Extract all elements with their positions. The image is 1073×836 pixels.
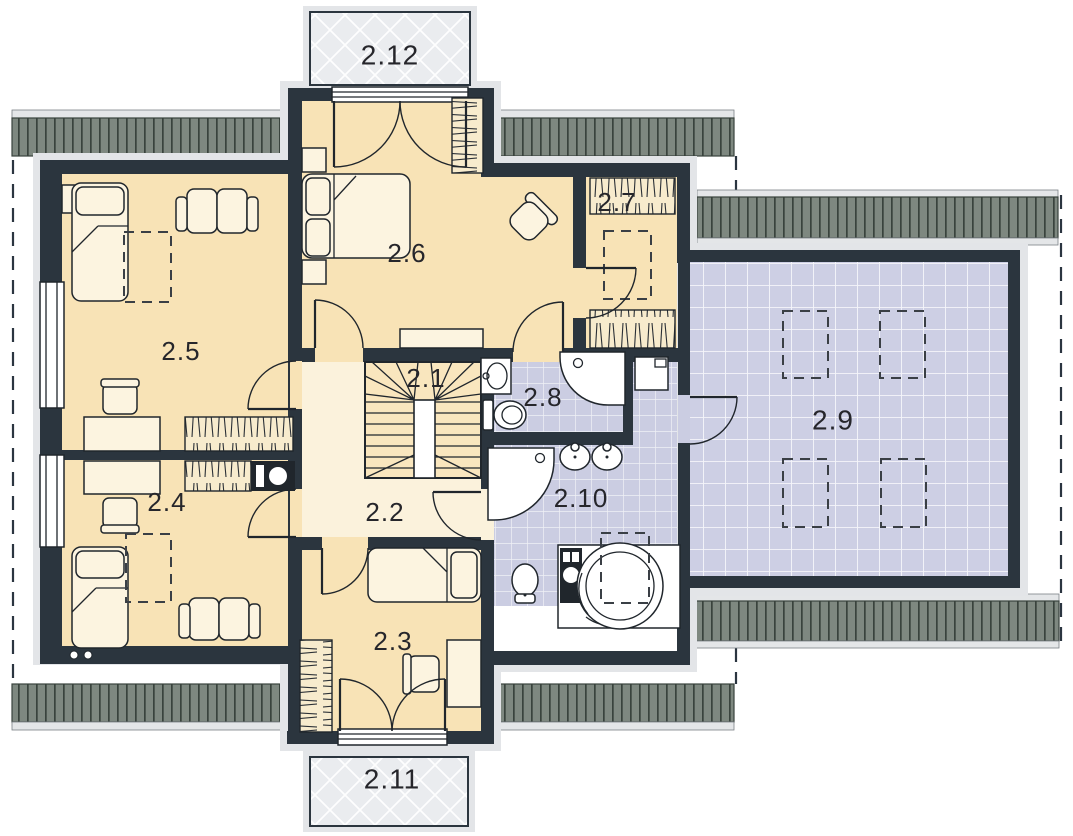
window-left-lower (40, 455, 64, 547)
balcony-door-2-12-frame (332, 87, 468, 102)
downpipe-dot (70, 651, 78, 659)
roof-strip-top-right (697, 197, 1058, 238)
downpipe-dot (84, 651, 92, 659)
floor-plan: 2.1 2.2 2.3 2.4 2.5 2.6 2.7 2.8 2.9 2.10… (0, 0, 1073, 836)
toilet-2-10 (512, 564, 538, 603)
wardrobe-2-5 (185, 417, 293, 451)
window-left-upper (40, 282, 64, 408)
cabinet-2-10 (635, 357, 668, 390)
room-2-1-label: 2.1 (406, 363, 445, 393)
roof-strip-bottom-right (694, 601, 1059, 641)
round-bathtub (577, 543, 663, 629)
room-2-5-label: 2.5 (161, 336, 200, 366)
room-2-4-label: 2.4 (147, 487, 186, 517)
sofa-2-4 (179, 598, 260, 640)
wardrobe-2-4 (185, 461, 251, 491)
chair-2-4 (101, 498, 139, 533)
balcony-door-2-11-frame (338, 729, 447, 745)
sink-2-8 (481, 358, 511, 394)
bed-2-3 (368, 548, 481, 602)
desk-2-3 (447, 640, 481, 707)
sink-2-10-left (560, 443, 590, 470)
roof-strip-bottom-center (497, 684, 734, 722)
roof-strip-bottom-left (12, 684, 283, 722)
room-2-3-label: 2.3 (373, 626, 412, 656)
chair-2-5 (101, 379, 139, 414)
bed-2-4 (72, 547, 128, 648)
roof-strip-top-center (492, 118, 734, 156)
nightstand (302, 148, 326, 172)
roof-strip-top-left (12, 118, 283, 156)
dressing-unit-2-4 (251, 461, 295, 491)
wardrobe-2-3 (300, 640, 332, 732)
room-2-8-label: 2.8 (523, 382, 562, 412)
room-2-9-label: 2.9 (812, 405, 854, 436)
room-2-2-label: 2.2 (365, 497, 404, 527)
desk-2-5 (84, 417, 160, 451)
room-2-7-label: 2.7 (597, 187, 636, 217)
room-2-11-label: 2.11 (364, 764, 420, 795)
dresser-2-6 (400, 329, 483, 348)
bed-2-5 (72, 183, 128, 301)
toilet-2-8 (483, 400, 526, 430)
room-2-6-label: 2.6 (387, 238, 426, 268)
stair-spine (414, 400, 435, 478)
wardrobe-2-6 (452, 98, 483, 173)
nightstand (302, 260, 326, 284)
room-2-10-label: 2.10 (554, 483, 609, 513)
room-2-12-label: 2.12 (361, 40, 420, 71)
sofa-2-5 (176, 189, 258, 233)
chair-2-3 (403, 654, 439, 694)
sink-2-10-right (592, 443, 622, 470)
